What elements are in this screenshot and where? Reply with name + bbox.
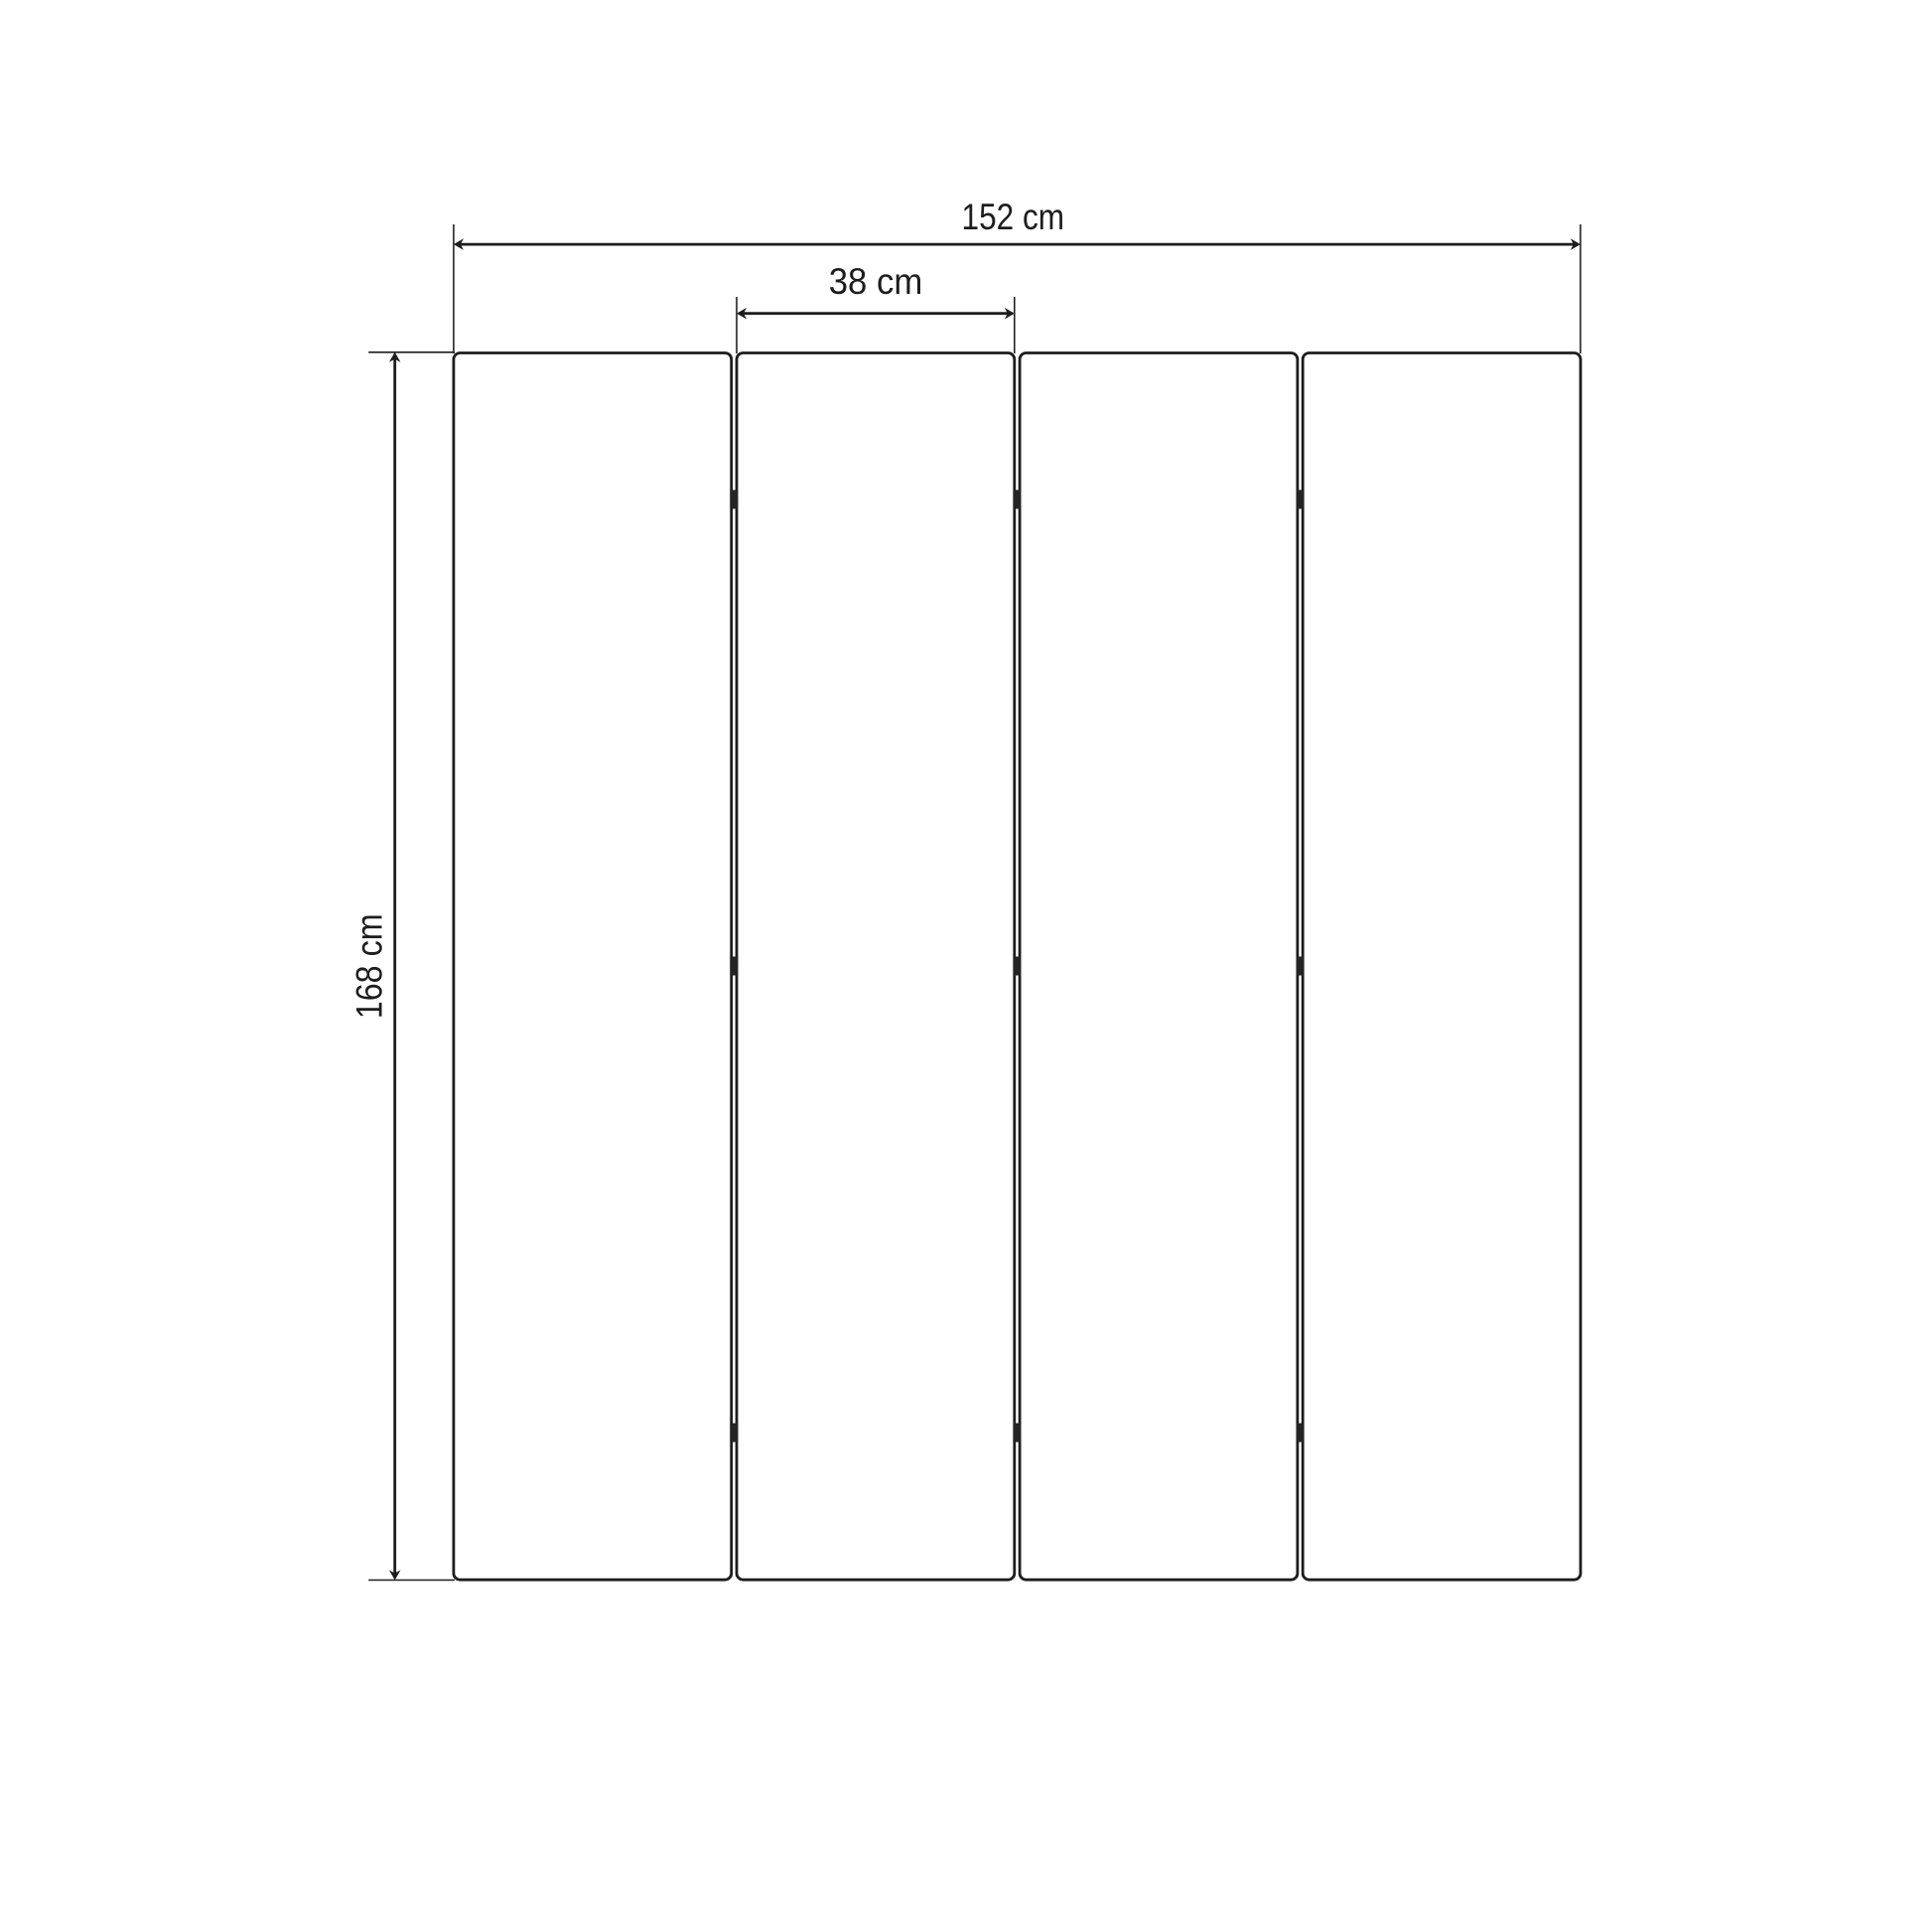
svg-text:152 cm: 152 cm	[962, 197, 1065, 237]
svg-text:168 cm: 168 cm	[348, 913, 389, 1019]
svg-text:38 cm: 38 cm	[829, 261, 923, 302]
